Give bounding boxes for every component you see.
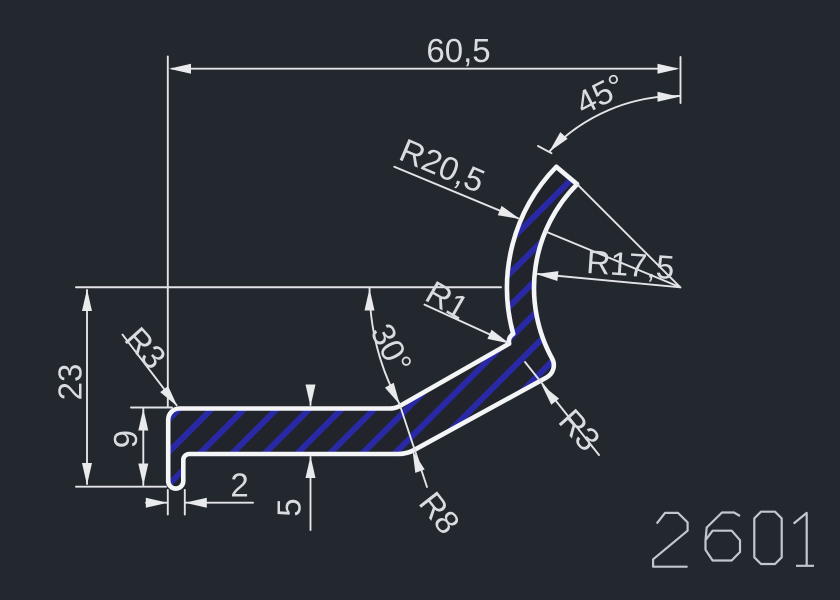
svg-text:5: 5 bbox=[271, 498, 308, 516]
svg-text:23: 23 bbox=[52, 364, 89, 401]
svg-text:R17,5: R17,5 bbox=[585, 243, 675, 286]
svg-text:2: 2 bbox=[230, 467, 248, 504]
svg-text:60,5: 60,5 bbox=[426, 32, 490, 69]
svg-text:9: 9 bbox=[107, 430, 144, 448]
